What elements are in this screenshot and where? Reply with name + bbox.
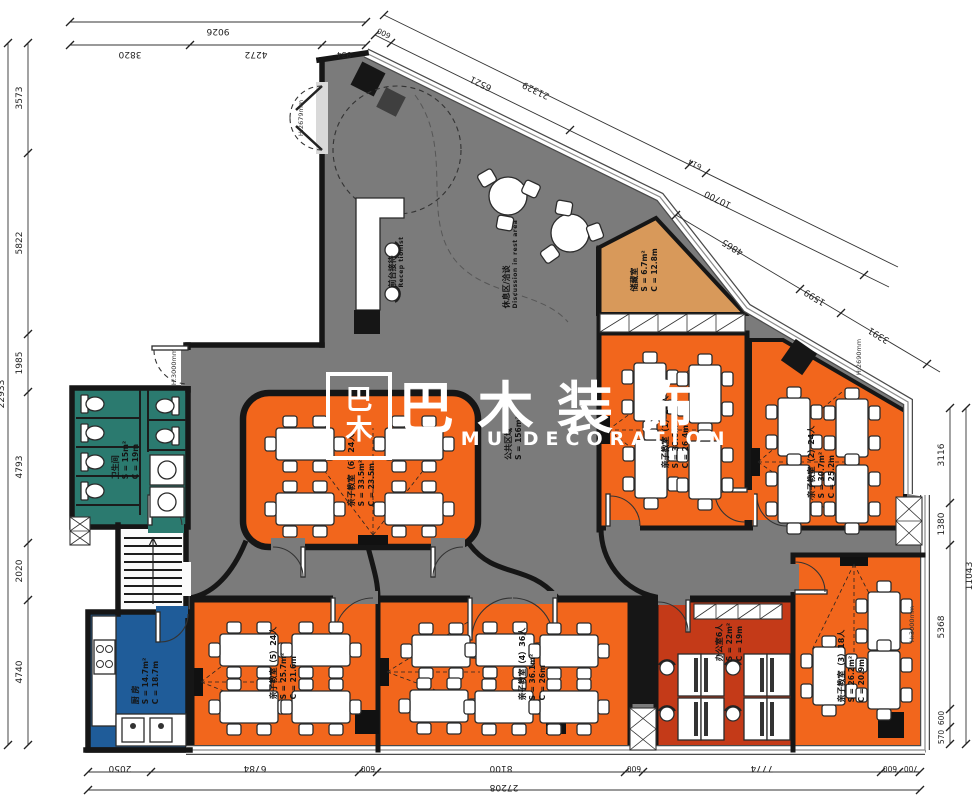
dim-diag: 600 [375, 26, 392, 40]
label-classroom3: 亲子教室（3）18人S = 26.2m²C = 20.9m [837, 630, 867, 703]
dim-left-seg: 2020 [15, 559, 25, 582]
dim-right-total: 11043 [965, 562, 975, 591]
height-label-entrance: H:2679mm [297, 100, 305, 136]
label-classroom5: 亲子教室（5）24人S = 25.7m²C = 21.6m [269, 627, 299, 700]
dim-top-seg: 4272 [245, 49, 268, 59]
dim-diag: 1599 [802, 286, 827, 307]
desk-pair [678, 698, 724, 740]
dim-top-total: 9026 [206, 26, 229, 36]
dim-bottom-seg: 2050 [108, 763, 131, 773]
label-reception: 前台接待Recep tionist [388, 236, 406, 287]
round-table [551, 214, 589, 252]
label-storage: 储藏室S = 6.7m²C = 12.8m [630, 248, 660, 291]
dim-top-seg: 3820 [118, 49, 141, 59]
dim-diag: 4865 [721, 237, 746, 257]
dim-bottom-seg: 7774 [750, 763, 773, 773]
dim-bottom-total: 27208 [489, 782, 518, 792]
desk-pair [744, 654, 790, 696]
dim-top-seg: 934 [337, 50, 352, 59]
label-kitchen: 厨 房S = 14.7m²C = 18.7m [131, 658, 161, 705]
floor-plan-page: 9026 3820 4272 934 27208 2050 6784 600 8… [0, 0, 976, 811]
desk-pair [744, 698, 790, 740]
dim-right-seg: 1380 [937, 512, 947, 535]
room-classroom-4 [378, 600, 630, 750]
dim-right-seg: 600 [937, 711, 946, 726]
height-label-storage: H:2690mm [855, 339, 863, 375]
label-office: 办公室6人S = 22m²C = 19m [715, 623, 745, 661]
watermark-logo: 巴木 [326, 372, 392, 460]
dim-right-seg: 3116 [937, 443, 947, 466]
dim-left-seg: 1985 [15, 352, 25, 375]
label-rest-area: 休息区/洽谈Discussion in rest area [502, 220, 520, 309]
dim-bottom-seg: 6784 [243, 763, 266, 773]
dim-diag: 6521 [469, 73, 494, 92]
dim-diag: 3391 [867, 325, 892, 345]
dim-bottom-seg: 8100 [489, 763, 512, 773]
dim-left-seg: 4740 [15, 660, 25, 683]
watermark-logo-glyphs: 巴木 [344, 386, 374, 445]
dim-left-total: 22933 [0, 380, 7, 409]
dim-bottom-seg: 600 [883, 764, 898, 773]
dim-left-seg: 3573 [15, 87, 25, 110]
dim-diag: 614 [686, 157, 703, 171]
height-label-side-door: H:3000mm [170, 349, 178, 385]
dim-left-seg: 4793 [15, 456, 25, 479]
round-table [489, 177, 527, 215]
dim-bottom-seg: 600 [361, 764, 376, 773]
label-classroom4: 亲子教室（4）36人S = 36.1m²C = 26m [518, 628, 548, 701]
label-classroom2: 亲子教室（2）24人S = 30.7m²C = 25.2m [807, 426, 837, 499]
dim-right-seg: 5368 [937, 615, 947, 638]
dim-left-seg: 5822 [15, 232, 25, 255]
dim-right-seg: 570 [937, 730, 946, 745]
dim-bottom-seg: 700 [904, 764, 919, 773]
height-label-right: H:3000mm [908, 606, 916, 642]
dim-diag: 21329 [521, 79, 551, 101]
dim-diag: 10700 [703, 188, 733, 210]
watermark-subtitle: BA MU DECORATION [404, 428, 732, 450]
dim-bottom-seg: 600 [627, 764, 642, 773]
label-bathroom: 卫生间S = 15m²C = 19m [111, 441, 141, 479]
